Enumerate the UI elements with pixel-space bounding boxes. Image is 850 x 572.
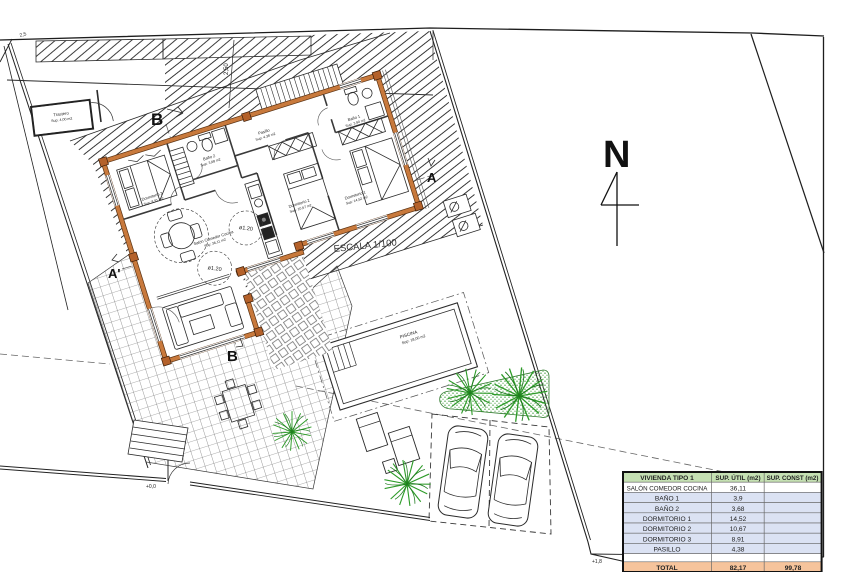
svg-text:B: B [151, 110, 163, 129]
svg-text:4,38: 4,38 [732, 547, 745, 554]
svg-text:TOTAL: TOTAL [656, 565, 677, 572]
svg-text:3,9: 3,9 [733, 496, 742, 503]
svg-text:DORMITORIO 1: DORMITORIO 1 [643, 516, 692, 523]
svg-text:B: B [227, 348, 238, 365]
svg-text:A: A [427, 170, 437, 185]
svg-text:+1,8: +1,8 [592, 559, 602, 565]
svg-text:N: N [603, 134, 630, 176]
svg-text:DORMITORIO 2: DORMITORIO 2 [643, 526, 692, 533]
svg-text:36,11: 36,11 [730, 485, 746, 492]
svg-text:BAÑO 1: BAÑO 1 [655, 494, 680, 503]
svg-text:SUP. CONST (m2): SUP. CONST (m2) [767, 475, 819, 482]
svg-text:SUP. ÚTIL (m2): SUP. ÚTIL (m2) [715, 473, 760, 482]
svg-text:10,67: 10,67 [730, 526, 747, 533]
svg-text:A': A' [108, 266, 120, 281]
svg-text:DORMITORIO 3: DORMITORIO 3 [643, 536, 692, 543]
svg-text:99,78: 99,78 [785, 565, 802, 572]
svg-text:82,17: 82,17 [730, 565, 747, 572]
svg-text:+0,0: +0,0 [146, 484, 156, 490]
svg-text:VIVIENDA TIPO 1: VIVIENDA TIPO 1 [640, 475, 694, 482]
svg-text:BAÑO 2: BAÑO 2 [655, 504, 680, 513]
svg-text:SALÓN COMEDOR COCINA: SALÓN COMEDOR COCINA [627, 485, 709, 492]
svg-text:PASILLO: PASILLO [654, 547, 681, 554]
svg-text:14,52: 14,52 [730, 516, 747, 523]
svg-text:8,91: 8,91 [732, 536, 745, 543]
svg-text:3,68: 3,68 [732, 506, 745, 513]
